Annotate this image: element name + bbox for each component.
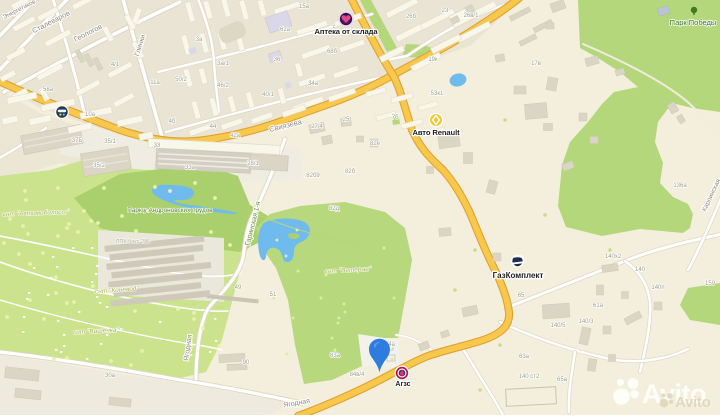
svg-text:82е: 82е <box>370 141 381 147</box>
svg-text:61а: 61а <box>593 303 604 309</box>
svg-text:140 ст2: 140 ст2 <box>519 374 540 380</box>
svg-text:140/5: 140/5 <box>550 323 566 329</box>
svg-text:83а: 83а <box>330 353 341 359</box>
svg-text:159: 159 <box>705 281 716 287</box>
svg-text:23: 23 <box>442 8 449 14</box>
svg-text:140: 140 <box>635 267 646 273</box>
svg-text:51: 51 <box>270 292 277 298</box>
svg-text:82б: 82б <box>345 169 356 175</box>
svg-text:36: 36 <box>274 57 281 63</box>
svg-text:82д: 82д <box>329 206 340 212</box>
svg-text:Парк у Андроновских прудов: Парк у Андроновских прудов <box>127 207 213 214</box>
svg-text:140/3: 140/3 <box>578 319 594 325</box>
svg-text:63а: 63а <box>519 354 530 360</box>
svg-text:49: 49 <box>235 285 242 291</box>
svg-text:53к1: 53к1 <box>431 91 444 97</box>
svg-text:62а: 62а <box>280 27 291 33</box>
svg-text:46/2: 46/2 <box>217 83 229 89</box>
svg-text:140п: 140п <box>651 285 664 291</box>
svg-text:27/4: 27/4 <box>311 124 323 130</box>
svg-text:26в/1: 26в/1 <box>464 13 480 19</box>
svg-text:10а: 10а <box>85 112 96 118</box>
svg-text:28/1: 28/1 <box>247 161 259 167</box>
svg-text:15а: 15а <box>299 4 310 10</box>
svg-text:Аптека от склада: Аптека от склада <box>314 27 378 36</box>
svg-text:Avito: Avito <box>675 394 711 411</box>
svg-text:30а: 30а <box>105 373 116 379</box>
svg-text:ГазКомплект: ГазКомплект <box>493 271 544 280</box>
svg-text:58а: 58а <box>43 87 54 93</box>
svg-text:40/1: 40/1 <box>262 92 274 98</box>
svg-text:7б: 7б <box>392 115 399 121</box>
svg-text:90: 90 <box>243 360 250 366</box>
svg-text:4/1: 4/1 <box>111 62 120 68</box>
svg-text:3а/1: 3а/1 <box>217 61 229 67</box>
svg-text:Авто Renault: Авто Renault <box>412 128 460 137</box>
svg-text:42а: 42а <box>230 133 241 139</box>
svg-text:34а: 34а <box>308 81 319 87</box>
svg-text:17в: 17в <box>531 61 541 67</box>
svg-text:35/1: 35/1 <box>104 139 116 145</box>
svg-text:35/2: 35/2 <box>93 163 105 169</box>
svg-text:33а: 33а <box>185 165 196 171</box>
svg-text:Парк Победы: Парк Победы <box>670 18 717 27</box>
svg-text:3а: 3а <box>196 37 203 43</box>
svg-text:Агзс: Агзс <box>395 381 410 388</box>
svg-text:140х2: 140х2 <box>605 254 622 260</box>
svg-text:11а: 11а <box>150 80 160 86</box>
svg-text:ЛПК бокс 286: ЛПК бокс 286 <box>116 239 150 245</box>
svg-text:19к: 19к <box>428 57 438 63</box>
svg-text:25: 25 <box>343 117 350 123</box>
svg-text:68б: 68б <box>327 49 338 55</box>
svg-text:33: 33 <box>154 143 161 149</box>
svg-text:37Б: 37Б <box>72 138 83 144</box>
svg-text:44: 44 <box>210 124 217 130</box>
svg-text:136а: 136а <box>673 183 687 189</box>
svg-text:50/2: 50/2 <box>175 77 187 83</box>
svg-text:26б: 26б <box>406 14 417 20</box>
svg-text:84в/4: 84в/4 <box>350 372 366 378</box>
svg-text:82б9: 82б9 <box>306 173 320 179</box>
svg-text:4б: 4б <box>169 119 176 125</box>
svg-text:65: 65 <box>518 293 525 299</box>
svg-text:65а: 65а <box>557 377 568 383</box>
